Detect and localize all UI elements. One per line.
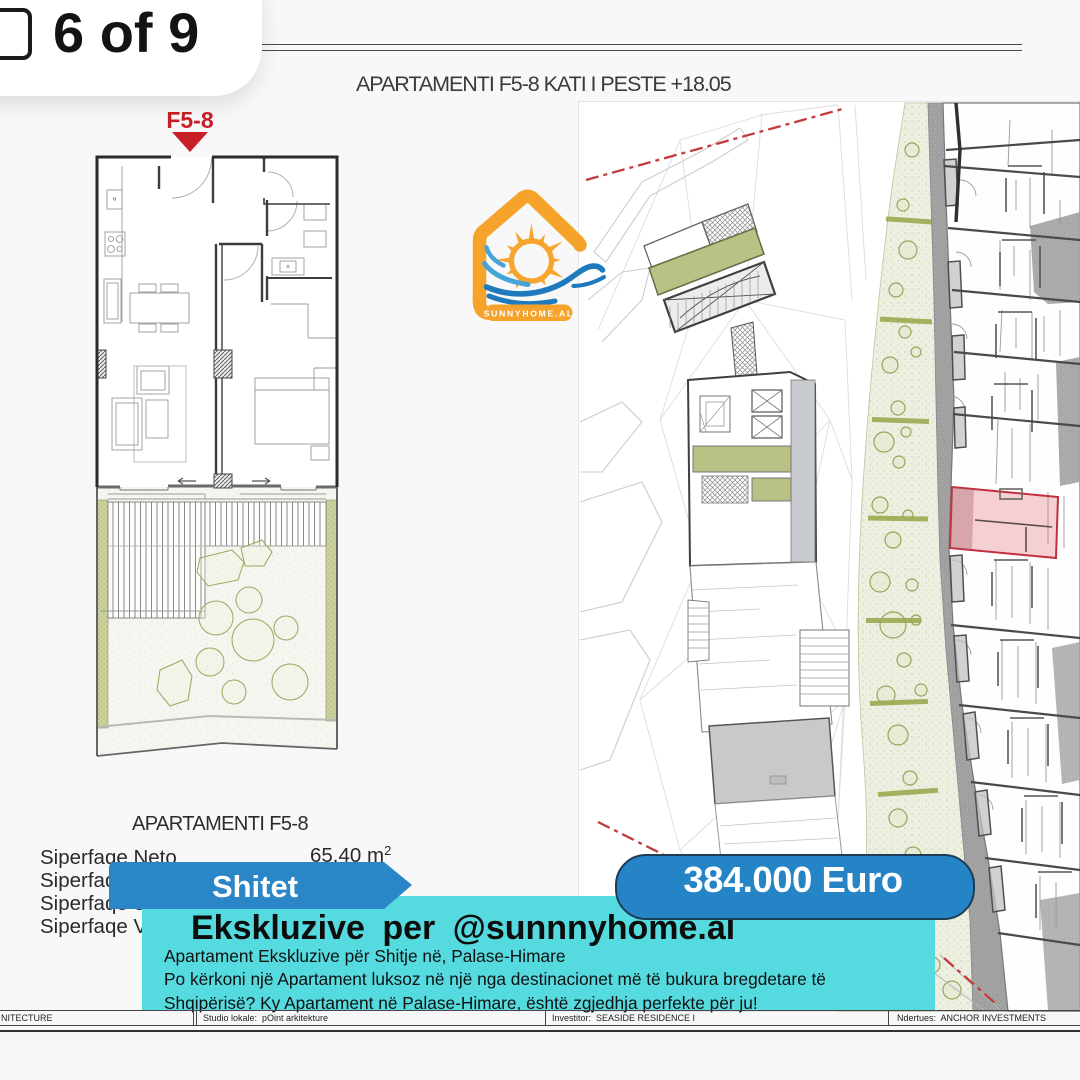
svg-text:Shitet: Shitet: [212, 869, 298, 904]
svg-text:SUNNYHOME.AL: SUNNYHOME.AL: [484, 309, 574, 319]
